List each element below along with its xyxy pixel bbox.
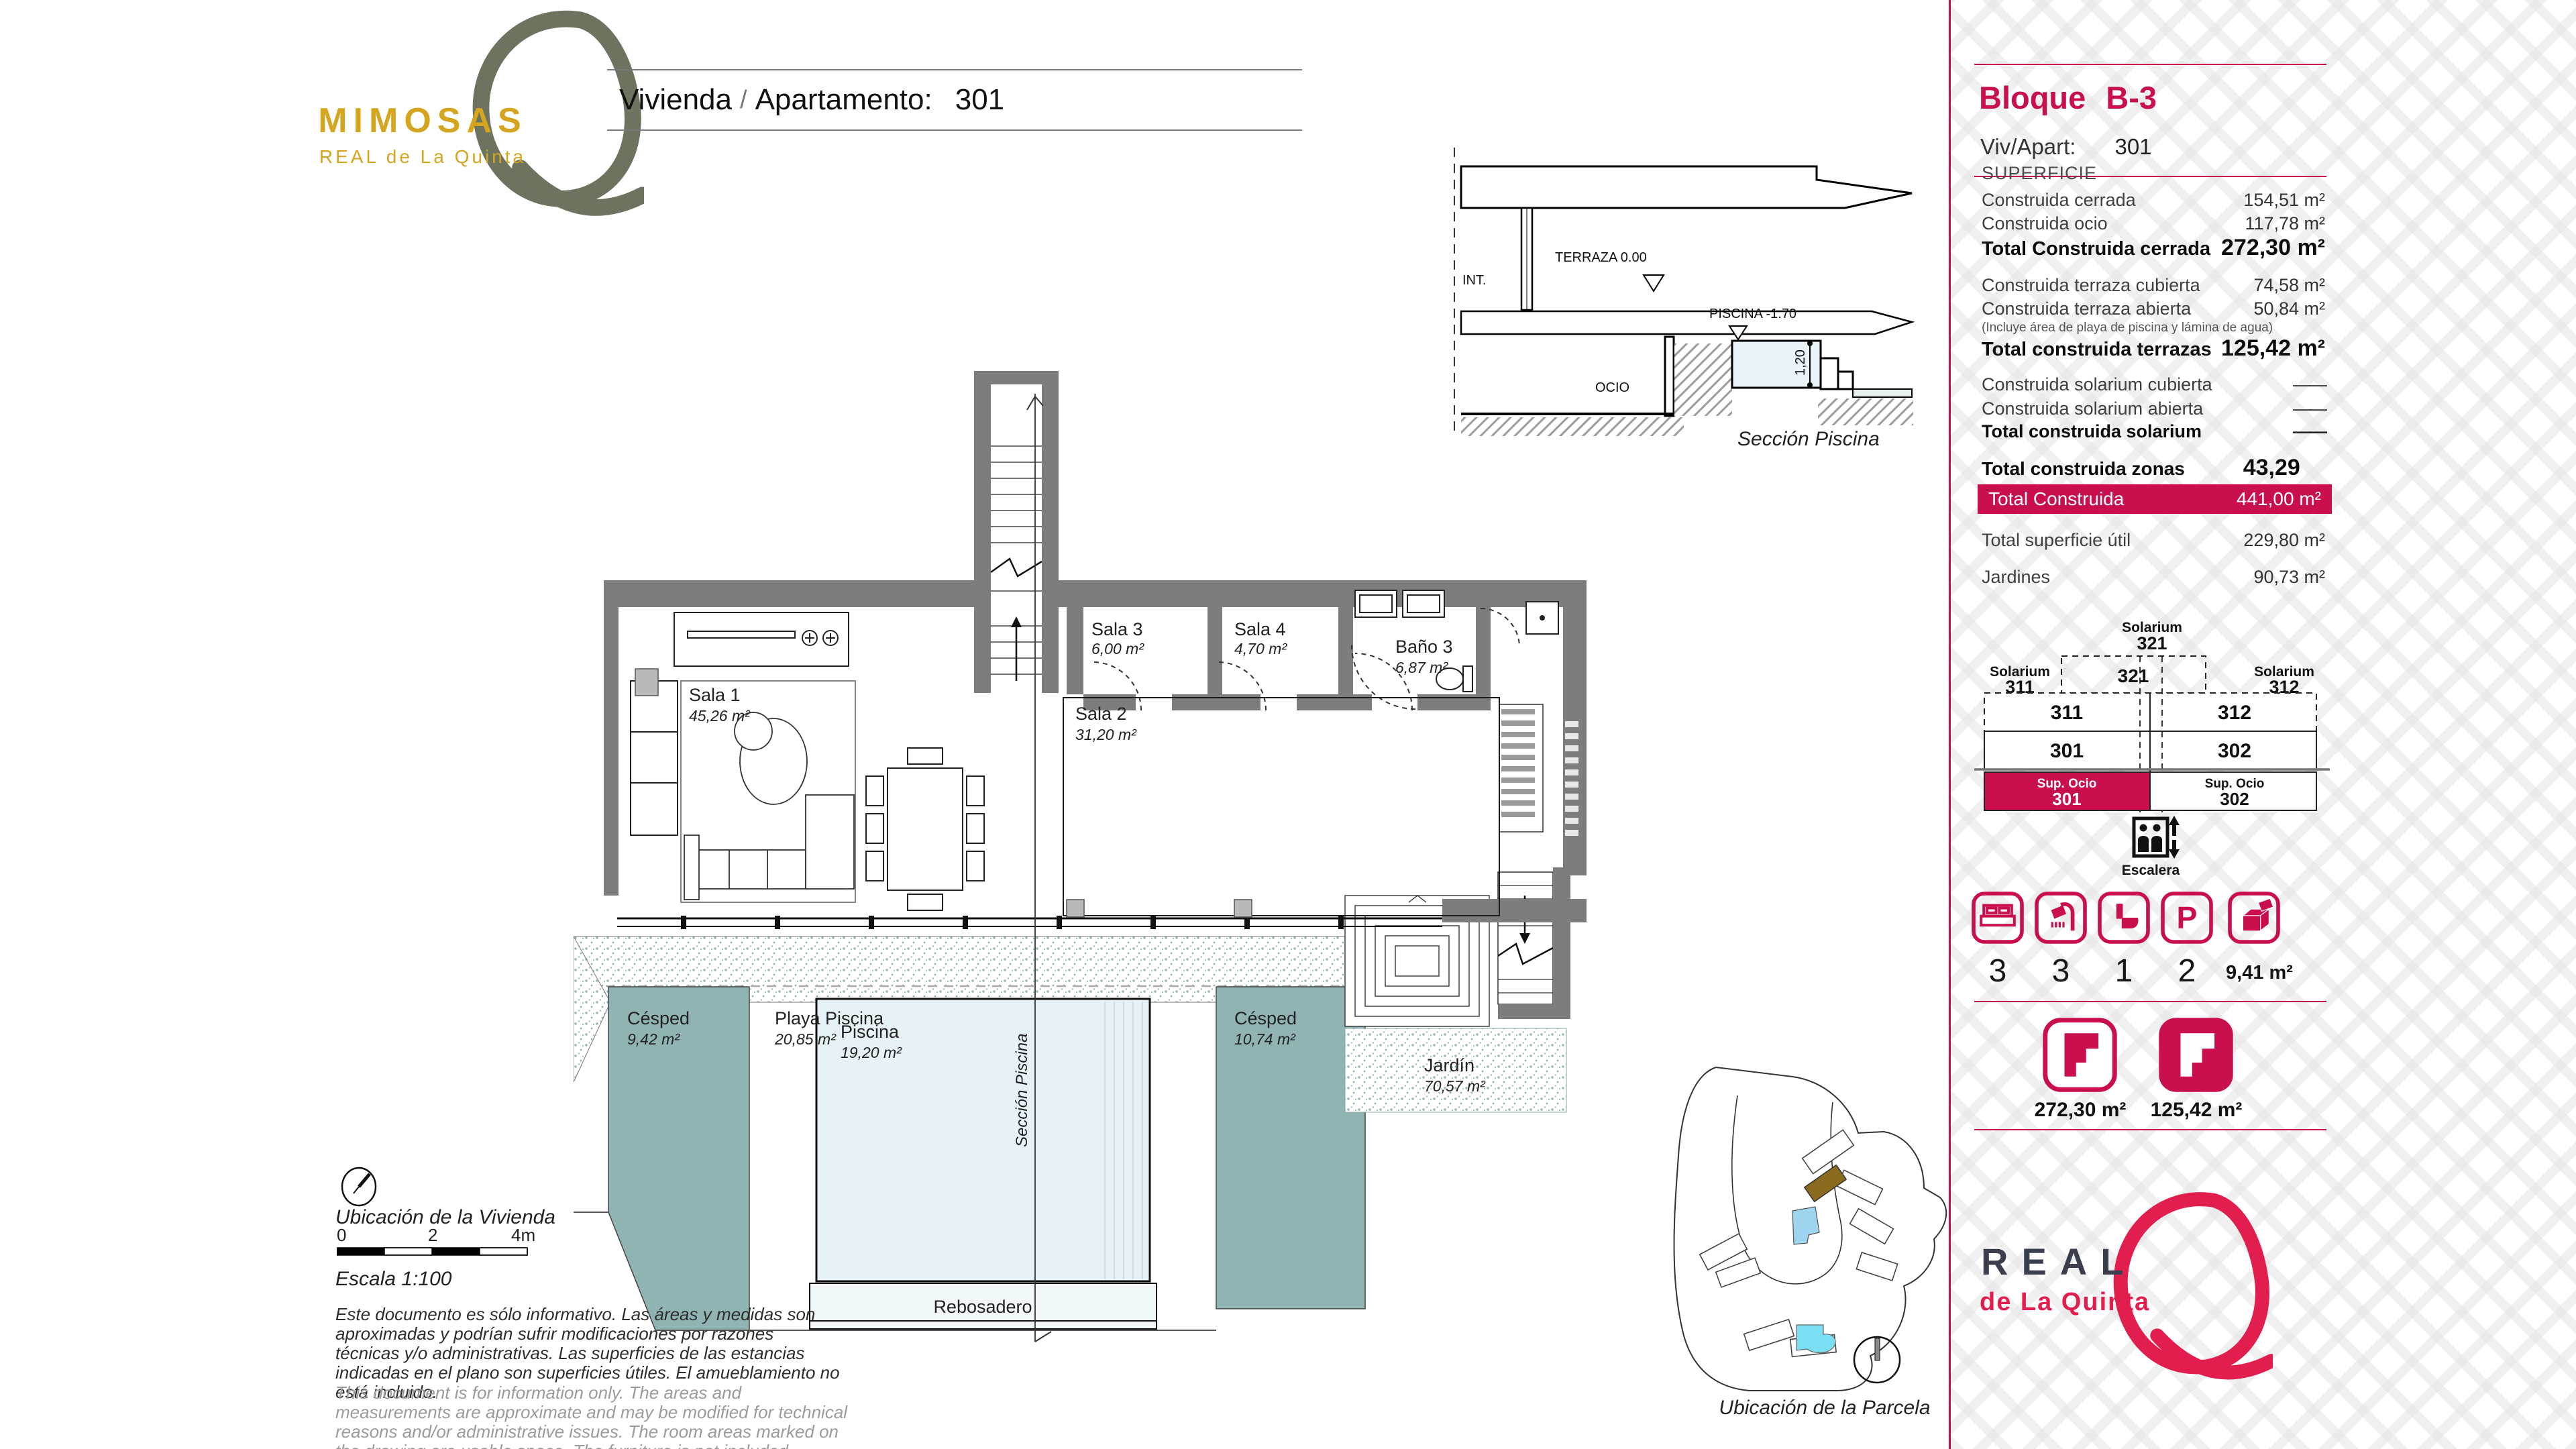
room-area: 10,74 m² <box>1234 1030 1296 1048</box>
room-label: Césped <box>1234 1008 1297 1028</box>
svg-text:311: 311 <box>2051 702 2083 724</box>
room-label: Jardín <box>1424 1055 1474 1075</box>
total-construida-value: 441,00 m² <box>2237 488 2321 510</box>
toilet-icon <box>2097 891 2151 945</box>
superficie-row: Total superficie útil229,80 m² <box>1982 530 2325 551</box>
room-area: 4,70 m² <box>1234 640 1287 657</box>
room-area: 6,87 m² <box>1395 659 1448 676</box>
unit-label: Viv/Apart: <box>1980 134 2076 159</box>
shelving <box>631 681 678 835</box>
shower-icon <box>2034 891 2088 945</box>
interior-stair <box>991 384 1042 693</box>
superficie-row: Construida ocio117,78 m² <box>1982 213 2325 234</box>
room-area: 19,20 m² <box>841 1044 902 1061</box>
kitchen <box>674 612 849 666</box>
block-title: BloqueB-3 <box>1979 79 2157 116</box>
compass-icon <box>339 1166 380 1207</box>
built-area-icon <box>2041 1016 2118 1093</box>
superficie-row: Construida cerrada154,51 m² <box>1982 190 2325 211</box>
divider <box>1974 1129 2326 1130</box>
room-area: 31,20 m² <box>1075 726 1137 743</box>
svg-text:312: 312 <box>2218 702 2251 724</box>
room-label: Baño 3 <box>1395 637 1453 657</box>
superficie-title: SUPERFICIE <box>1982 163 2097 184</box>
room-label: Piscina <box>841 1022 900 1042</box>
room-area: 45,26 m² <box>689 707 751 724</box>
room-area: 9,42 m² <box>627 1030 680 1048</box>
superficie-row: Construida terraza cubierta74,58 m² <box>1982 275 2325 296</box>
scale-label: Escala 1:100 <box>335 1268 451 1291</box>
superficie-note: (Incluye área de playa de piscina y lámi… <box>1982 321 2273 335</box>
total-construida-label: Total Construida <box>1988 488 2124 510</box>
storage-area: 9,41 m² <box>2226 962 2293 984</box>
superficie-row: Construida solarium abierta—— <box>1982 398 2325 419</box>
divider <box>1974 1001 2326 1002</box>
svg-text:301: 301 <box>2052 789 2081 809</box>
svg-text:P: P <box>2177 900 2198 935</box>
room-area: 70,57 m² <box>1424 1077 1486 1095</box>
scale-tick: 4m <box>511 1225 535 1246</box>
superficie-row: Jardines90,73 m² <box>1982 567 2325 588</box>
brand-subtitle: REAL de La Quinta <box>315 146 530 168</box>
superficie-total-row: Total Construida cerrada272,30 m² <box>1982 235 2325 261</box>
site-plan-caption: Ubicación de la Parcela <box>1707 1397 1942 1419</box>
parking-count: 2 <box>2178 953 2196 989</box>
svg-text:Escalera: Escalera <box>2122 863 2180 878</box>
room-label: Césped <box>627 1008 690 1028</box>
svg-text:Sección Piscina: Sección Piscina <box>1013 1034 1031 1147</box>
svg-text:321: 321 <box>2137 633 2167 653</box>
toilet-count: 1 <box>2115 953 2133 989</box>
logo-quinta: de La Quinta <box>1980 1288 2150 1317</box>
svg-text:1,20: 1,20 <box>1793 350 1808 376</box>
bathroom-count: 3 <box>2052 953 2070 989</box>
svg-text:301: 301 <box>2050 740 2084 762</box>
room-label: Sala 2 <box>1075 704 1127 724</box>
pool-section-caption: Sección Piscina <box>1737 428 1880 450</box>
superficie-row: Construida terraza abierta50,84 m² <box>1982 299 2325 319</box>
block-value: B-3 <box>2106 80 2157 115</box>
unit-value: 301 <box>2114 134 2151 159</box>
svg-text:INT.: INT. <box>1462 273 1487 288</box>
unit-line: Viv/Apart:301 <box>1980 134 2152 160</box>
disclaimer-en: This document is for information only. T… <box>335 1383 851 1449</box>
room-area: 20,85 m² <box>774 1030 837 1048</box>
logo-real: REAL <box>1981 1240 2137 1283</box>
bed-icon <box>1971 891 2025 945</box>
info-sidebar: BloqueB-3 Viv/Apart:301 SUPERFICIE Const… <box>1949 0 2576 1449</box>
scale-tick: 2 <box>428 1225 437 1246</box>
brand-name: MIMOSAS <box>315 101 530 141</box>
scale-bar <box>337 1246 531 1257</box>
superficie-total-row: Total construida solarium—— <box>1982 421 2325 442</box>
room-label: Sala 3 <box>1091 619 1143 639</box>
terrace-area-icon <box>2157 1016 2235 1093</box>
scale-tick: 0 <box>337 1225 346 1246</box>
bedroom-count: 3 <box>1989 953 2007 989</box>
floor-plan: Sección Piscina Sala 1 45,26 m² Sala 2 3… <box>574 366 1600 1352</box>
room-label: Sala 4 <box>1234 619 1286 639</box>
svg-text:321: 321 <box>2118 665 2149 686</box>
title-apartamento: Apartamento: <box>755 83 932 117</box>
block-label: Bloque <box>1979 80 2086 115</box>
plan-sheet: MIMOSAS REAL de La Quinta Vivienda / Apa… <box>0 0 2576 1449</box>
title-unit-number: 301 <box>955 83 1004 117</box>
site-plan <box>1637 1057 1952 1399</box>
svg-text:PISCINA -1.70: PISCINA -1.70 <box>1709 307 1796 321</box>
divider <box>1974 64 2326 65</box>
svg-text:OCIO: OCIO <box>1595 380 1629 395</box>
room-label: Sala 1 <box>689 685 741 705</box>
block-diagram: Solarium 321 321 Solarium 311 Solarium 3… <box>1974 617 2330 879</box>
rebosadero-label: Rebosadero <box>933 1297 1032 1317</box>
built-area-value: 272,30 m² <box>2035 1099 2127 1122</box>
title-vivienda: Vivienda <box>619 83 732 117</box>
svg-text:302: 302 <box>2218 740 2251 762</box>
superficie-row: Construida solarium cubierta—— <box>1982 374 2325 395</box>
parking-icon: P <box>2160 891 2214 945</box>
room-area: 6,00 m² <box>1091 640 1144 657</box>
sheet-title: Vivienda / Apartamento: 301 <box>607 69 1302 131</box>
dining-table <box>866 748 984 910</box>
elevator-icon <box>2134 816 2180 859</box>
title-separator: / <box>740 86 747 115</box>
terrace-area-value: 125,42 m² <box>2151 1099 2243 1122</box>
striped-stair <box>1499 704 1543 832</box>
glass-facade <box>617 916 1442 929</box>
superficie-total-row: Total construida terrazas125,42 m² <box>1982 335 2325 362</box>
svg-text:302: 302 <box>2220 789 2249 809</box>
svg-text:TERRAZA 0.00: TERRAZA 0.00 <box>1555 250 1647 265</box>
total-construida-bar: Total Construida 441,00 m² <box>1978 484 2332 514</box>
brand-text: MIMOSAS REAL de La Quinta <box>315 101 530 168</box>
storage-icon <box>2227 891 2281 945</box>
outdoor-stair <box>1498 867 1570 1019</box>
